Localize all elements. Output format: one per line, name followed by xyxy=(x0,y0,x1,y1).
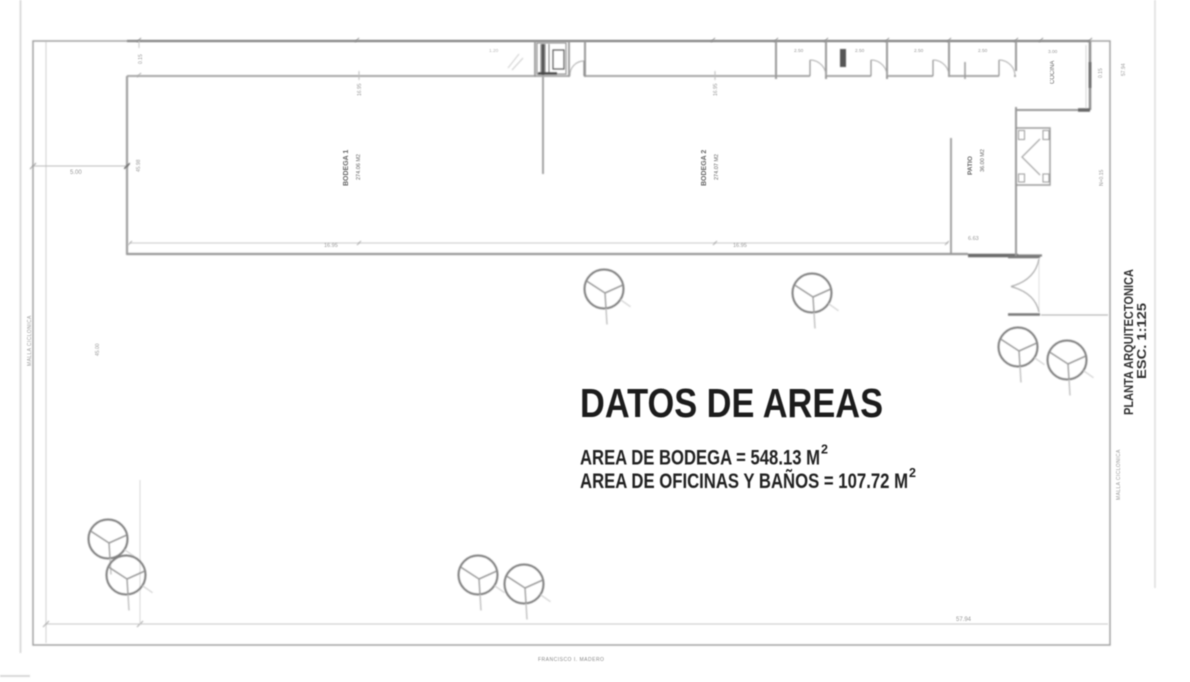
svg-text:2.50: 2.50 xyxy=(978,48,988,54)
svg-text:PATIO: PATIO xyxy=(967,156,974,175)
svg-text:N+0.15: N+0.15 xyxy=(1099,170,1105,186)
svg-text:BODEGA 1: BODEGA 1 xyxy=(343,150,350,186)
svg-text:2.50: 2.50 xyxy=(855,48,865,54)
svg-text:PLANTA ARQUITECTONICA: PLANTA ARQUITECTONICA xyxy=(1121,269,1136,415)
svg-text:45.00: 45.00 xyxy=(95,343,101,356)
svg-text:36.00 M2: 36.00 M2 xyxy=(980,149,986,172)
svg-text:5.00: 5.00 xyxy=(70,170,82,176)
svg-text:0.15: 0.15 xyxy=(138,54,144,64)
svg-text:BODEGA 2: BODEGA 2 xyxy=(701,150,708,186)
svg-text:AREA DE BODEGA = 548.13 M: AREA DE BODEGA = 548.13 M xyxy=(580,446,820,470)
svg-text:57.94: 57.94 xyxy=(956,617,972,623)
svg-text:DATOS DE AREAS: DATOS DE AREAS xyxy=(580,380,883,426)
svg-text:3.00: 3.00 xyxy=(1048,49,1058,55)
svg-text:16.95: 16.95 xyxy=(733,243,747,249)
svg-text:2: 2 xyxy=(909,466,916,480)
svg-text:16.95: 16.95 xyxy=(357,83,363,96)
svg-text:MALLA CICLONICA: MALLA CICLONICA xyxy=(1116,449,1122,500)
svg-text:ESC. 1:125: ESC. 1:125 xyxy=(1135,303,1149,379)
svg-text:57.94: 57.94 xyxy=(1121,63,1127,76)
svg-text:2.50: 2.50 xyxy=(794,48,804,54)
svg-text:274.06 M2: 274.06 M2 xyxy=(356,154,362,180)
svg-text:2: 2 xyxy=(821,443,828,457)
svg-text:1.20: 1.20 xyxy=(489,48,499,54)
svg-text:6.63: 6.63 xyxy=(968,236,979,242)
svg-text:45.98: 45.98 xyxy=(136,159,142,172)
svg-text:0.15: 0.15 xyxy=(1098,68,1104,78)
svg-text:MALLA CICLONICA: MALLA CICLONICA xyxy=(27,315,33,366)
svg-text:274.07 M2: 274.07 M2 xyxy=(714,154,720,180)
svg-text:16.95: 16.95 xyxy=(324,243,338,249)
svg-text:FRANCISCO I. MADERO: FRANCISCO I. MADERO xyxy=(538,657,604,663)
svg-text:2.50: 2.50 xyxy=(914,48,924,54)
svg-text:16.95: 16.95 xyxy=(713,83,719,96)
svg-text:COCINA: COCINA xyxy=(1050,61,1056,84)
svg-text:AREA DE OFICINAS Y BAÑOS = 107: AREA DE OFICINAS Y BAÑOS = 107.72 M xyxy=(580,468,908,493)
